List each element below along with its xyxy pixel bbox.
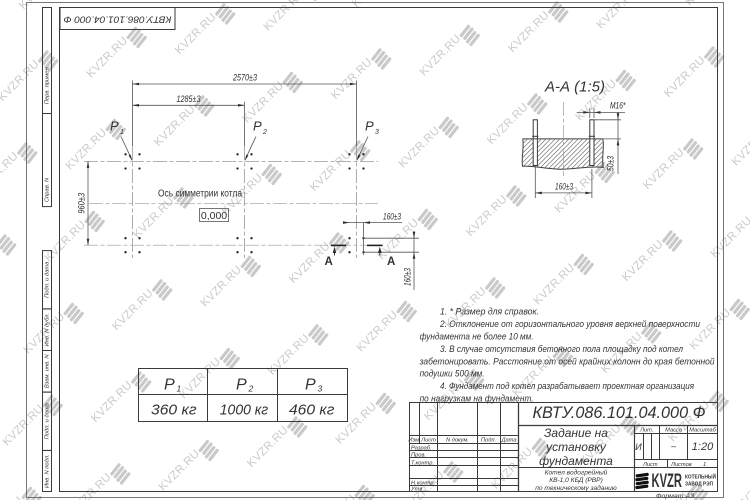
svg-text:1: 1	[703, 462, 706, 468]
svg-text:Справ. N: Справ. N	[44, 177, 50, 202]
svg-text:1: 1	[120, 129, 124, 136]
svg-text:подушки 500 мм.: подушки 500 мм.	[420, 369, 485, 379]
svg-text:3: 3	[375, 129, 379, 136]
svg-text:Лит.: Лит.	[639, 428, 653, 434]
svg-text:3. В случае отсутствия бетонн: 3. В случае отсутствия бетонного пола пл…	[440, 344, 683, 354]
svg-text:Подп. и дата: Подп. и дата	[44, 261, 50, 298]
svg-text:И: И	[635, 442, 642, 452]
svg-text:KVZR: KVZR	[652, 470, 683, 492]
svg-text:Дата: Дата	[500, 438, 516, 444]
svg-text:Пров.: Пров.	[411, 452, 426, 458]
svg-text:Задание на: Задание на	[544, 426, 608, 440]
svg-text:КВТУ.086.101.04.000 Ф: КВТУ.086.101.04.000 Ф	[533, 403, 706, 422]
svg-text:0,000: 0,000	[201, 210, 227, 222]
svg-text:2. Отклонение от горизонтальн: 2. Отклонение от горизонтального уровня …	[439, 319, 700, 329]
svg-text:2570±3: 2570±3	[232, 73, 257, 83]
svg-text:забетонировать. Расстояние от: забетонировать. Расстояние от осей крайн…	[419, 356, 715, 366]
svg-text:3: 3	[318, 384, 323, 394]
svg-text:P: P	[305, 377, 316, 394]
svg-text:Инв. N дубл.: Инв. N дубл.	[44, 313, 50, 347]
svg-text:960±3: 960±3	[77, 193, 87, 214]
svg-text:А: А	[387, 256, 395, 268]
svg-text:Котел водогрейный: Котел водогрейный	[545, 469, 608, 477]
svg-text:P: P	[236, 377, 247, 394]
svg-text:Ось симметрии котла: Ось симметрии котла	[158, 189, 242, 200]
svg-text:Подп.: Подп.	[481, 438, 496, 444]
svg-text:Перв. примен.: Перв. примен.	[44, 66, 50, 105]
svg-text:N докум.: N докум.	[446, 438, 469, 444]
svg-text:P: P	[365, 119, 374, 134]
svg-text:КВ-1,0 КБД (РВР): КВ-1,0 КБД (РВР)	[549, 477, 603, 484]
svg-text:КОТЕЛЬНЫЙ: КОТЕЛЬНЫЙ	[685, 473, 716, 481]
svg-text:Масштаб: Масштаб	[689, 428, 716, 434]
svg-text:М16*: М16*	[610, 101, 626, 111]
svg-text:1000 кг: 1000 кг	[220, 402, 269, 419]
svg-text:по нагрузкам на фундамент.: по нагрузкам на фундамент.	[420, 394, 534, 404]
svg-text:Листов: Листов	[670, 462, 692, 468]
svg-text:Масса: Масса	[665, 428, 682, 434]
svg-text:160±3: 160±3	[403, 268, 413, 286]
svg-text:Инв. N подл.: Инв. N подл.	[44, 454, 50, 488]
svg-text:фундамента не более 10 мм.: фундамента не более 10 мм.	[420, 331, 534, 341]
svg-text:по техническому заданию: по техническому заданию	[535, 484, 617, 492]
svg-text:Т.контр.: Т.контр.	[411, 460, 434, 466]
svg-text:Утв.: Утв.	[410, 487, 424, 493]
svg-text:2: 2	[248, 384, 254, 394]
svg-text:1285±3: 1285±3	[177, 94, 201, 104]
svg-text:50±3: 50±3	[606, 156, 616, 171]
svg-text:Лист: Лист	[420, 438, 436, 444]
svg-text:Формат А3: Формат А3	[656, 493, 694, 500]
svg-text:4. Фундамент под котел разраб: 4. Фундамент под котел разрабатывает про…	[440, 381, 694, 391]
svg-text:1:20: 1:20	[692, 441, 714, 453]
svg-text:2: 2	[262, 129, 267, 136]
svg-text:А: А	[324, 256, 332, 268]
svg-text:P: P	[164, 377, 175, 394]
svg-text:P: P	[110, 119, 119, 134]
svg-text:А-А (1:5): А-А (1:5)	[544, 79, 605, 96]
svg-text:Н.контр.: Н.контр.	[411, 480, 435, 486]
svg-text:360 кг: 360 кг	[151, 402, 197, 419]
svg-text:Подп. и дата: Подп. и дата	[44, 402, 50, 439]
svg-text:1. * Размер для справок.: 1. * Размер для справок.	[440, 307, 539, 317]
svg-text:установку: установку	[545, 440, 607, 454]
svg-text:–: –	[671, 441, 676, 451]
svg-text:КВТУ.086.101.04.000 Ф: КВТУ.086.101.04.000 Ф	[63, 13, 171, 24]
svg-text:Лист: Лист	[642, 462, 658, 468]
svg-text:160±3: 160±3	[383, 212, 401, 222]
svg-text:ЗАВОД РЭП: ЗАВОД РЭП	[685, 482, 713, 488]
svg-text:Разраб.: Разраб.	[411, 445, 432, 451]
svg-text:Изм.: Изм.	[408, 438, 420, 444]
svg-text:P: P	[253, 119, 262, 134]
svg-text:1: 1	[177, 384, 182, 394]
svg-text:160±3: 160±3	[555, 182, 573, 192]
svg-text:фундамента: фундамента	[539, 454, 613, 468]
svg-text:460 кг: 460 кг	[289, 402, 335, 419]
svg-text:Взам. инв. N: Взам. инв. N	[44, 354, 50, 389]
